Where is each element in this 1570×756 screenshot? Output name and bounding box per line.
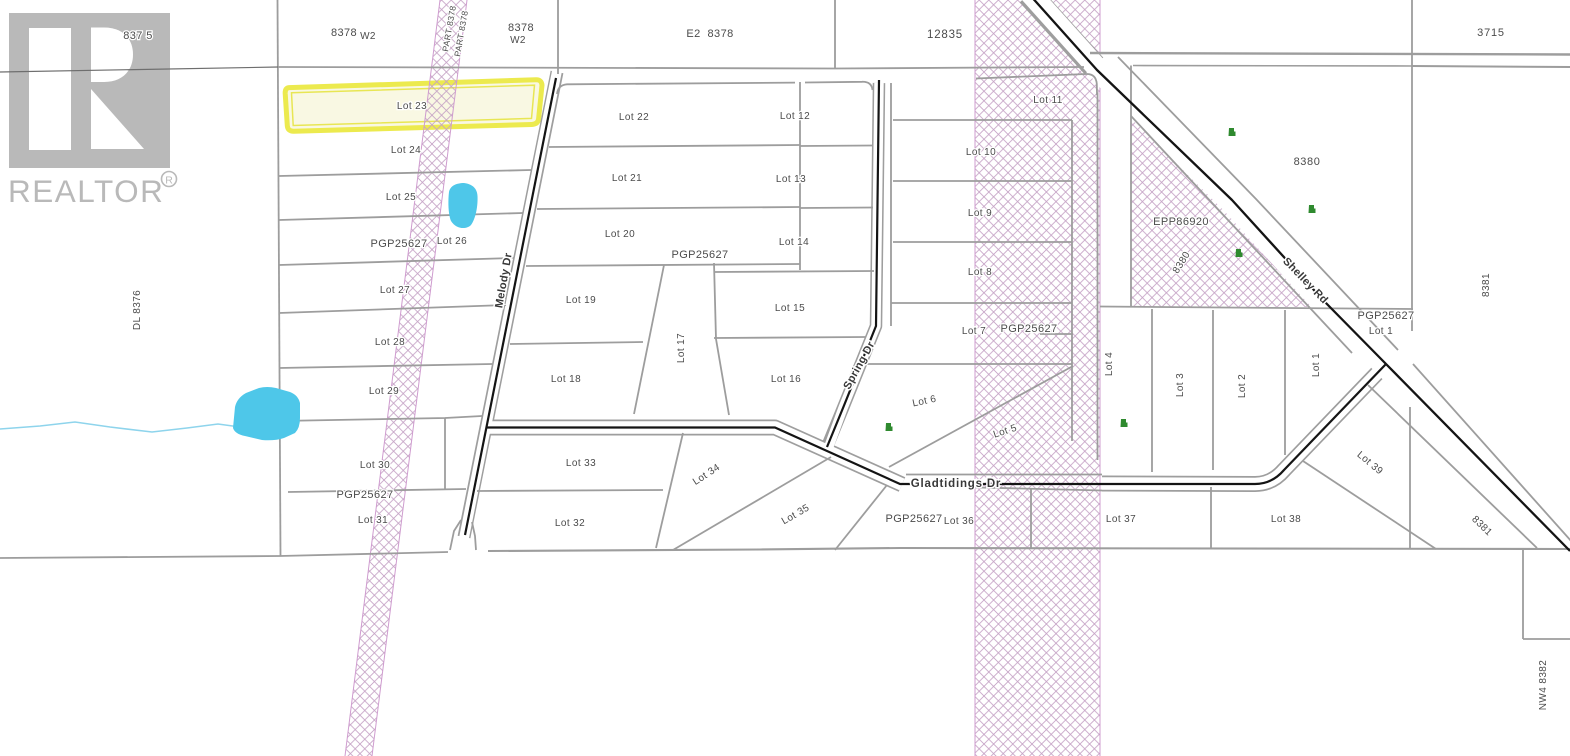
svg-text:Lot 29: Lot 29 xyxy=(369,386,399,397)
svg-text:PGP25627: PGP25627 xyxy=(885,513,942,525)
svg-text:Lot 21: Lot 21 xyxy=(612,173,642,184)
svg-text:PGP25627: PGP25627 xyxy=(671,249,728,261)
svg-text:Lot 1: Lot 1 xyxy=(1369,326,1393,337)
svg-text:Lot 7: Lot 7 xyxy=(962,326,986,337)
svg-text:Lot 2: Lot 2 xyxy=(1237,374,1248,398)
svg-text:Lot 38: Lot 38 xyxy=(1271,514,1301,525)
svg-text:Lot 25: Lot 25 xyxy=(386,192,416,203)
svg-text:Lot 20: Lot 20 xyxy=(605,229,635,240)
svg-text:EPP86920: EPP86920 xyxy=(1153,216,1209,228)
svg-text:Lot 27: Lot 27 xyxy=(380,285,410,296)
svg-text:PGP25627: PGP25627 xyxy=(1000,323,1057,335)
svg-text:Lot 28: Lot 28 xyxy=(375,337,405,348)
svg-text:Lot 10: Lot 10 xyxy=(966,147,996,158)
svg-text:Lot 9: Lot 9 xyxy=(968,208,992,219)
svg-text:8381: 8381 xyxy=(1481,273,1492,297)
svg-text:NW4 8382: NW4 8382 xyxy=(1538,660,1549,710)
svg-text:Lot 1: Lot 1 xyxy=(1311,353,1322,377)
svg-text:8380: 8380 xyxy=(1294,156,1321,168)
svg-text:Lot 11: Lot 11 xyxy=(1033,95,1062,106)
svg-text:Lot 16: Lot 16 xyxy=(771,374,801,385)
svg-text:Lot 13: Lot 13 xyxy=(776,174,806,185)
svg-text:8378: 8378 xyxy=(331,27,357,39)
svg-text:W2: W2 xyxy=(510,35,526,46)
svg-text:W2: W2 xyxy=(360,31,376,42)
svg-text:REALTOR: REALTOR xyxy=(8,173,164,209)
svg-text:8378: 8378 xyxy=(508,22,534,34)
svg-text:3715: 3715 xyxy=(1477,27,1505,39)
svg-text:Lot 15: Lot 15 xyxy=(775,303,805,314)
svg-text:Lot 36: Lot 36 xyxy=(944,516,974,527)
svg-text:837 5: 837 5 xyxy=(123,30,153,42)
svg-text:Lot 26: Lot 26 xyxy=(437,236,467,247)
svg-text:Lot 24: Lot 24 xyxy=(391,145,421,156)
svg-text:12835: 12835 xyxy=(927,29,963,41)
svg-text:Lot 14: Lot 14 xyxy=(779,237,809,248)
svg-text:Lot 37: Lot 37 xyxy=(1106,514,1136,525)
svg-text:Lot 30: Lot 30 xyxy=(360,460,390,471)
svg-text:PGP25627: PGP25627 xyxy=(336,489,393,501)
svg-text:Lot 17: Lot 17 xyxy=(676,333,687,363)
svg-text:Lot 22: Lot 22 xyxy=(619,112,649,123)
svg-text:E2 8378: E2 8378 xyxy=(686,28,733,40)
svg-text:Lot 31: Lot 31 xyxy=(358,515,388,526)
svg-text:Lot 8: Lot 8 xyxy=(968,267,992,278)
svg-text:Lot 4: Lot 4 xyxy=(1104,352,1115,376)
svg-text:R: R xyxy=(165,175,173,187)
svg-text:Lot 32: Lot 32 xyxy=(555,518,585,529)
svg-text:Lot 23: Lot 23 xyxy=(397,101,427,112)
svg-text:Lot 18: Lot 18 xyxy=(551,374,581,385)
svg-text:Lot 3: Lot 3 xyxy=(1175,373,1186,397)
svg-text:PGP25627: PGP25627 xyxy=(1357,310,1414,322)
svg-text:PGP25627: PGP25627 xyxy=(370,238,427,250)
svg-text:Gladtidings Dr: Gladtidings Dr xyxy=(911,478,1001,490)
svg-text:Lot 19: Lot 19 xyxy=(566,295,596,306)
svg-text:DL 8376: DL 8376 xyxy=(132,290,143,330)
svg-text:Lot 33: Lot 33 xyxy=(566,458,596,469)
svg-text:Lot 12: Lot 12 xyxy=(780,111,810,122)
